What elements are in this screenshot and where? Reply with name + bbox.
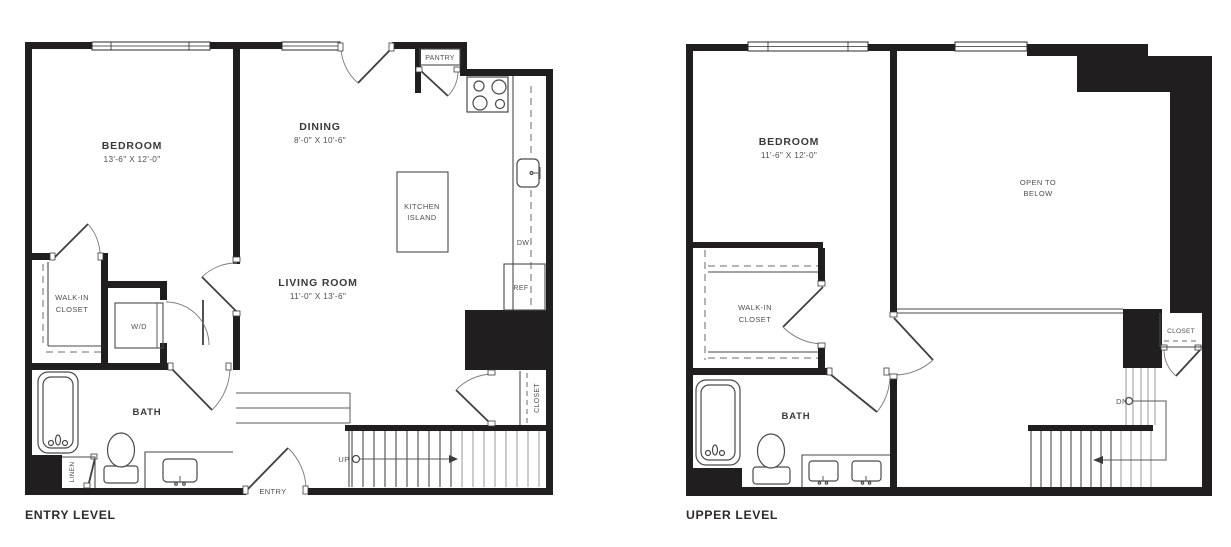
walk-in-label-2: CLOSET [56,305,88,314]
closet-label: CLOSET [534,383,541,413]
dining-window [282,42,340,50]
pantry-label: PANTRY [425,55,455,62]
dining-label: DINING [299,121,341,133]
upper-double-vanity [802,455,890,487]
dining-dims: 8'-0" X 10'-6" [294,135,346,145]
right-wall-column [1170,92,1212,313]
bedroom-window [92,42,210,50]
bedroom-door [202,257,240,316]
upper-level-title: UPPER LEVEL [686,508,778,522]
open-to-below-label-1: OPEN TO [1020,178,1056,187]
dn-arrow-head [1093,456,1103,464]
landing-lines [236,393,350,423]
ref-label: REF [514,285,529,292]
entry-bath-fixtures [38,372,233,488]
living-room-dims: 11'-0" X 13'-6" [290,291,346,301]
entry-door-label: ENTRY [259,487,286,496]
open-to-below-label-2: BELOW [1023,189,1053,198]
living-room-label: LIVING ROOM [278,277,357,289]
up-label: UP [338,455,349,464]
upper-walls [686,44,1212,496]
vanity-sink [145,452,233,488]
wd-label: W/D [131,322,147,331]
walk-in-shelf [48,262,101,346]
bath-door [168,363,231,410]
upper-open-to-below [897,309,1123,313]
upper-toilet [753,434,790,484]
dw-label: DW [517,240,529,247]
dn-label: DN [1116,397,1128,406]
balcony-door [338,43,394,83]
linen-label: LINEN [69,462,76,483]
upper-bedroom-label: BEDROOM [759,136,819,148]
hall-closet-door [456,370,495,426]
kitchen-sink [517,159,540,187]
bedroom-dims: 13'-6" X 12'-0" [104,154,161,164]
upper-bedroom-dims: 11'-6" X 12'-0" [761,150,817,160]
upper-level-plan: BEDROOM 11'-6" X 12'-0" OPEN TO BELOW WA… [686,42,1212,522]
stair-treads-light [1121,431,1151,487]
floor-plan-svg: BEDROOM 13'-6" X 12'-0" DINING 8'-0" X 1… [0,0,1231,547]
upper-walk-in-label-2: CLOSET [739,315,771,324]
stair-block [1123,309,1162,368]
kitchen-island-label-2: ISLAND [407,213,437,222]
upper-closet-label: CLOSET [1167,328,1195,335]
entry-level-title: ENTRY LEVEL [25,508,116,522]
pantry-door [416,67,460,96]
washer-dryer-door [166,300,209,345]
toilet [104,433,138,483]
kitchen-island-label-1: KITCHEN [404,202,440,211]
walk-in-rods-horiz [708,266,818,358]
bathtub [38,372,78,453]
entry-level-plan: BEDROOM 13'-6" X 12'-0" DINING 8'-0" X 1… [25,42,553,522]
upper-bedroom-door [890,312,933,379]
bedroom-label: BEDROOM [102,140,162,152]
upper-bedroom-window [748,42,868,51]
upper-walk-in-door [783,281,825,348]
open-edge-lines [897,309,1123,313]
upper-closet-door [1161,345,1201,376]
shaft-block [465,310,553,370]
open-area-window [955,42,1027,51]
walk-in-label-1: WALK-IN [55,293,89,302]
stair-treads-upper [462,431,539,487]
upper-bath-label: BATH [782,411,811,422]
upper-walk-in-label-1: WALK-IN [738,303,772,312]
upper-run-treads [1126,368,1155,425]
upper-bath-door [827,368,890,412]
up-marker [353,456,360,463]
upper-bathtub [696,380,740,465]
up-arrow-head [449,455,458,463]
floor-plan-canvas: BEDROOM 13'-6" X 12'-0" DINING 8'-0" X 1… [0,0,1231,547]
entry-stairs [236,393,539,487]
bath-label: BATH [133,407,162,418]
walk-in-closet-door [50,224,103,260]
kitchen-island [397,172,448,252]
stove [467,77,508,112]
